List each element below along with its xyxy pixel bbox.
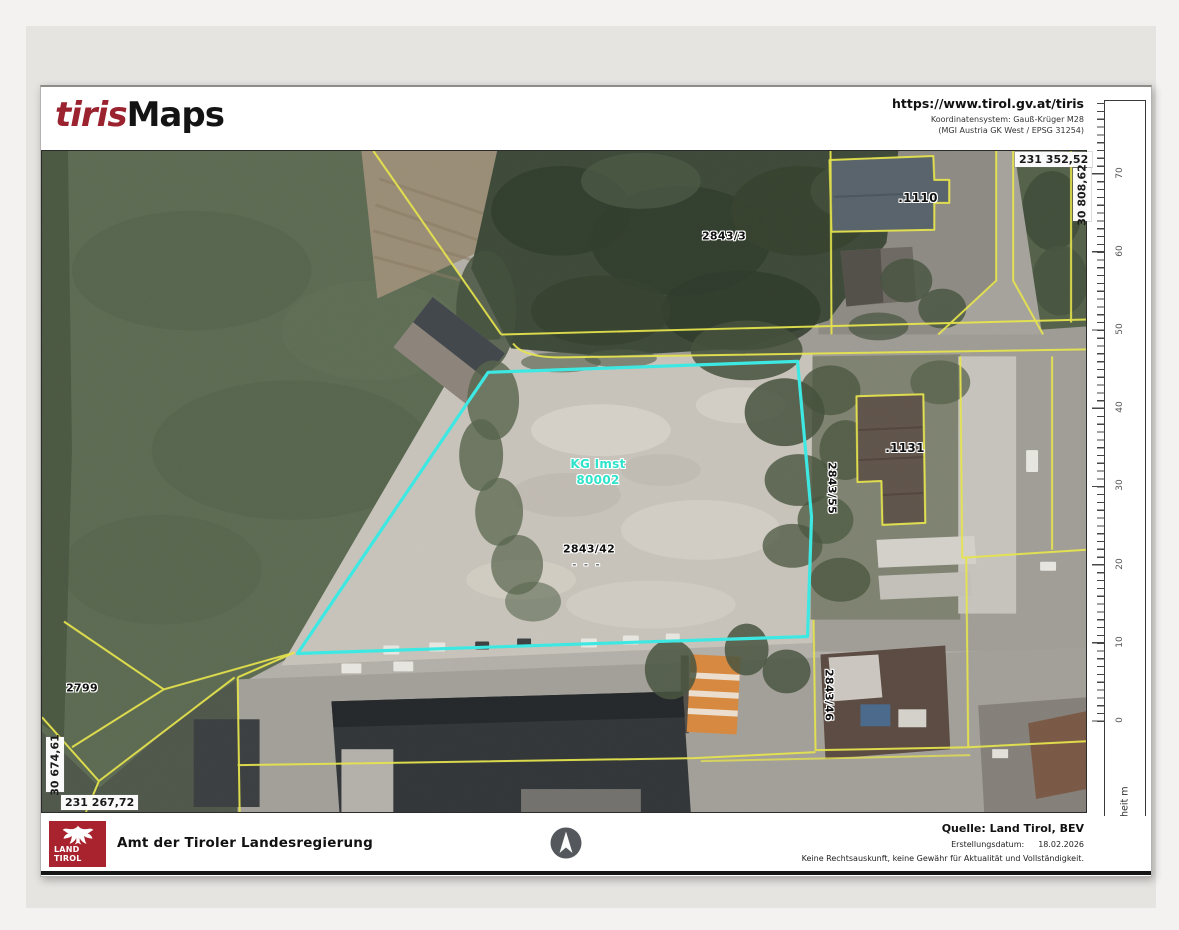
building-label-1110: .1110 <box>898 191 937 205</box>
footer-info: Quelle: Land Tirol, BEV Erstellungsdatum… <box>802 822 1084 863</box>
ruler-label-0: 0 <box>1115 707 1125 733</box>
building-label-1131: .1131 <box>885 441 924 455</box>
source-note: Quelle: Land Tirol, BEV <box>802 822 1084 835</box>
parcel-label-2799: 2799 <box>66 682 98 695</box>
coordinate-system-line2: (MGI Austria GK West / EPSG 31254) <box>892 126 1084 137</box>
ruler-label-10: 10 <box>1115 629 1125 655</box>
logo-tiris: tiris <box>55 95 127 135</box>
coordinate-system-line1: Koordinatensystem: Gauß-Krüger M28 <box>892 115 1084 126</box>
parcel-2843-42-marks: - - - <box>572 560 601 571</box>
logo-maps: Maps <box>127 95 224 135</box>
ruler-label-30: 30 <box>1115 472 1125 498</box>
ruler-major-ticks <box>1092 173 1105 723</box>
tiris-maps-logo: tirisMaps <box>55 95 224 135</box>
header-info: https://www.tirol.gv.at/tiris Koordinate… <box>892 96 1084 136</box>
creation-date-line: Erstellungsdatum:18.02.2026 <box>802 840 1084 849</box>
disclaimer-note: Keine Rechtsauskunft, keine Gewähr für A… <box>802 854 1084 863</box>
tiris-url: https://www.tirol.gv.at/tiris <box>892 96 1084 111</box>
sheet-footer: LAND TIROL Amt der Tiroler Landesregieru… <box>41 816 1151 871</box>
parcel-label-2843-55: 2843/55 <box>826 462 839 514</box>
scale-ruler: 70 60 50 40 30 20 10 0 Maßeinheit m <box>1104 100 1146 860</box>
photo-grain-overlay <box>42 151 1086 812</box>
coordinate-bottom-left-x: 231 267,72 <box>61 795 138 810</box>
map-canvas: 2843/3 .1110 .1131 2843/55 KG Imst 80002… <box>41 150 1087 813</box>
sheet-header: tirisMaps https://www.tirol.gv.at/tiris … <box>41 87 1151 150</box>
agency-name: Amt der Tiroler Landesregierung <box>117 816 373 871</box>
cadastral-unit-number-label: 80002 <box>576 473 619 487</box>
coordinate-top-right-y: 30 808,62 <box>1073 168 1091 221</box>
creation-date-label: Erstellungsdatum: <box>951 840 1024 849</box>
land-tirol-logo: LAND TIROL <box>49 821 106 867</box>
map-sheet: tirisMaps https://www.tirol.gv.at/tiris … <box>40 85 1152 877</box>
cadastral-unit-name-label: KG Imst <box>570 457 625 471</box>
sheet-bottom-rule <box>41 871 1151 875</box>
coordinate-system-info: Koordinatensystem: Gauß-Krüger M28 (MGI … <box>892 115 1084 136</box>
creation-date-value: 18.02.2026 <box>1038 840 1084 849</box>
aerial-photo <box>42 151 1086 812</box>
parcel-label-2843-42: 2843/42 <box>563 543 615 556</box>
parcel-label-2843-3: 2843/3 <box>702 230 746 243</box>
ruler-label-50: 50 <box>1115 316 1125 342</box>
ruler-label-70: 70 <box>1115 160 1125 186</box>
north-arrow-icon <box>550 827 582 859</box>
land-tirol-logo-text: LAND TIROL <box>54 846 82 863</box>
ruler-label-20: 20 <box>1115 551 1125 577</box>
ruler-label-40: 40 <box>1115 394 1125 420</box>
parcel-label-2843-46: 2843/46 <box>823 669 836 721</box>
ruler-label-60: 60 <box>1115 238 1125 264</box>
coordinate-bottom-left-y: 30 674,61 <box>46 737 64 792</box>
